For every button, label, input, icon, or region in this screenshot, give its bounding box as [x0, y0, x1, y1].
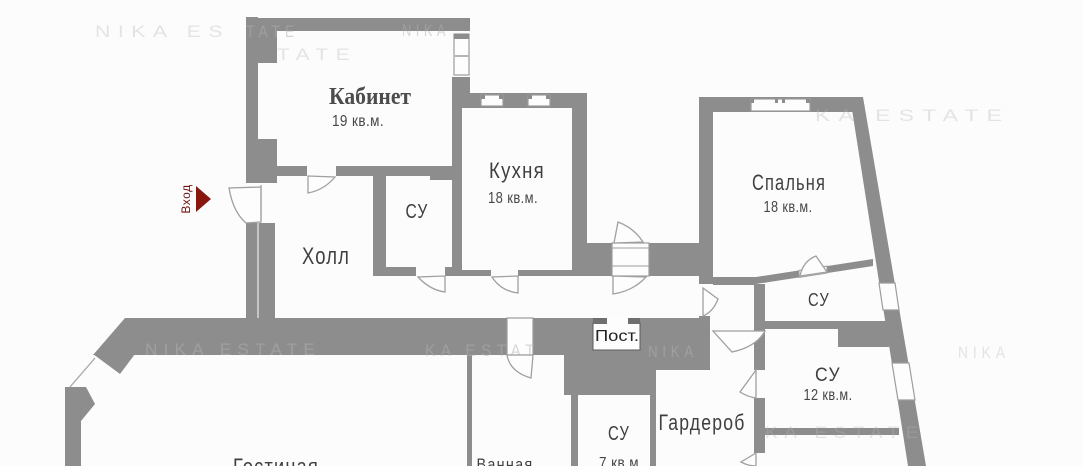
svg-text:TATE: TATE	[246, 22, 299, 41]
svg-text:18 кв.м.: 18 кв.м.	[764, 199, 813, 216]
svg-text:СУ: СУ	[608, 423, 630, 445]
svg-text:СУ: СУ	[808, 290, 830, 310]
svg-text:Кабинет: Кабинет	[329, 84, 411, 110]
svg-text:NIKA: NIKA	[958, 343, 1010, 362]
svg-text:Вход: Вход	[179, 184, 193, 213]
svg-text:7 кв.м: 7 кв.м	[599, 455, 639, 466]
svg-text:Пост.: Пост.	[595, 328, 639, 345]
svg-text:Гардероб: Гардероб	[659, 410, 746, 435]
svg-text:Гостиная: Гостиная	[233, 454, 319, 466]
svg-text:СУ: СУ	[406, 201, 429, 223]
svg-text:TATE: TATE	[277, 45, 357, 64]
svg-text:NIKA: NIKA	[402, 21, 450, 40]
svg-text:Ванная: Ванная	[477, 455, 534, 466]
svg-text:KA ESTATE: KA ESTATE	[815, 106, 1010, 125]
svg-text:KA ESTATE: KA ESTATE	[765, 423, 925, 442]
svg-text:Кухня: Кухня	[489, 158, 545, 183]
svg-text:19 кв.м.: 19 кв.м.	[332, 113, 384, 130]
svg-text:12 кв.м.: 12 кв.м.	[804, 387, 853, 404]
svg-text:NIKA: NIKA	[648, 342, 698, 361]
svg-text:NIKA ES: NIKA ES	[95, 22, 230, 41]
svg-text:Спальня: Спальня	[752, 170, 826, 195]
svg-text:СУ: СУ	[815, 365, 841, 386]
svg-text:18 кв.м.: 18 кв.м.	[488, 190, 538, 207]
svg-text:Холл: Холл	[302, 243, 350, 270]
svg-text:KA ESTAT: KA ESTAT	[425, 341, 540, 360]
svg-text:NIKA ESTATE: NIKA ESTATE	[145, 340, 321, 359]
